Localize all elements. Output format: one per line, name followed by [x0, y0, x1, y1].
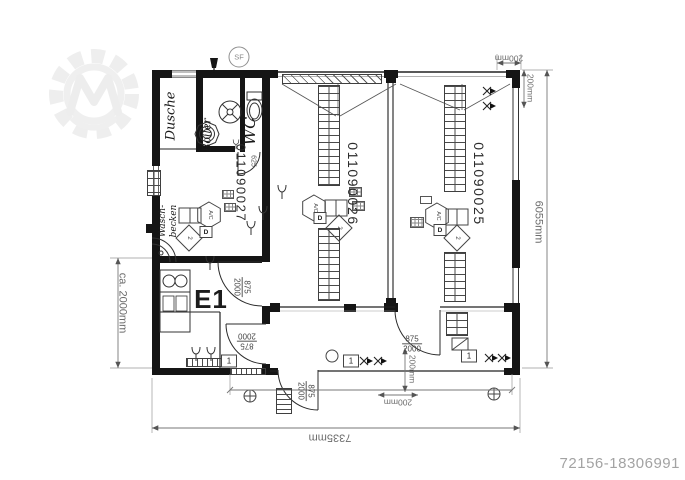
door-threshold — [230, 368, 266, 375]
offset-dimension-bottom: 200mm — [384, 398, 412, 407]
device-letter: D — [204, 229, 209, 236]
light-switch-symbol: 1 — [461, 350, 477, 363]
door-size-label: 875 2000 — [402, 334, 422, 353]
ac-unit-label: A/C — [206, 210, 212, 219]
room-label-washbasin: Wasch- becken — [158, 205, 180, 238]
shelving-rack — [444, 252, 466, 302]
total-depth-dimension: 6055mm — [533, 201, 544, 244]
switch-number: 1 — [467, 352, 471, 361]
shelving-rack — [318, 85, 340, 186]
equipment-box — [410, 217, 424, 228]
door-height: 2000 — [232, 277, 242, 297]
shelving-rack — [446, 312, 468, 336]
entrance-steps — [276, 388, 292, 414]
door-width: 875 — [240, 342, 253, 351]
diamond-symbol-label: 2 — [336, 226, 342, 229]
lamp-icon — [326, 350, 338, 362]
door-size-label: 875 2000 — [237, 331, 257, 350]
kitchenette-icon — [160, 270, 190, 332]
washroom-room-number: 011090027 — [235, 144, 248, 223]
offset-dimension-top: 200mm — [495, 54, 523, 63]
device-letter: D — [438, 227, 443, 234]
switch-number: 1 — [349, 357, 353, 366]
diamond-symbol-label: 2 — [186, 236, 192, 239]
room-label-e1: E1 — [194, 286, 228, 312]
door-height: 2000 — [237, 331, 257, 341]
door-size-label: 875 2000 — [296, 381, 315, 401]
room-label-wc: WC — [242, 117, 258, 146]
storage-right-room-number: 011090025 — [472, 142, 486, 225]
photo-id: 72156-18306991 — [560, 455, 680, 472]
offset-dimension-bottom-vertical: 200mm — [408, 355, 417, 383]
device-symbol: D — [314, 212, 327, 224]
door-width: 875 — [243, 280, 252, 293]
shelving-rack — [318, 228, 340, 301]
door-width: 875 — [405, 334, 418, 343]
offset-dimension-top-vertical: 200mm — [526, 74, 535, 102]
diamond-symbol-label: 2 — [454, 236, 460, 239]
floorplan-drawing — [0, 0, 685, 480]
fan-icon — [219, 101, 241, 123]
washbasin-line2: becken — [169, 205, 180, 238]
site-ref-text: SF — [234, 53, 244, 62]
storage-left-room-number: 011090026 — [346, 142, 360, 225]
window-sill-marks — [147, 170, 161, 196]
room-label-dusche: Dusche — [165, 92, 178, 141]
floorplan-scan-page: Dusche Boiler WC Wasch- becken E1 011090… — [0, 0, 685, 480]
door-width: 875 — [307, 384, 316, 397]
device-letter: D — [318, 215, 323, 222]
equipment-box — [222, 190, 234, 199]
door-size-label: 875 2000 — [232, 277, 251, 297]
door-height: 2000 — [402, 344, 422, 354]
ac-unit-label: A/C — [434, 211, 440, 220]
total-width-dimension: 7335mm — [309, 432, 352, 443]
wall-shelf — [282, 74, 382, 84]
washbasin-line1: Wasch- — [158, 205, 169, 238]
annex-depth-dimension: ca. 2000mm — [117, 273, 128, 334]
switch-number: 1 — [227, 357, 231, 366]
equipment-box — [420, 196, 432, 204]
door-height: 2000 — [296, 381, 306, 401]
device-symbol: D — [434, 224, 447, 236]
room-label-boiler: Boiler — [202, 118, 213, 152]
device-symbol: D — [200, 226, 213, 238]
wc-door-size-label: 625 — [250, 155, 257, 167]
light-switch-symbol: 1 — [221, 355, 237, 368]
shelving-rack — [444, 85, 466, 192]
site-ref-badge: SF — [229, 47, 250, 68]
light-switch-symbol: 1 — [343, 355, 359, 368]
